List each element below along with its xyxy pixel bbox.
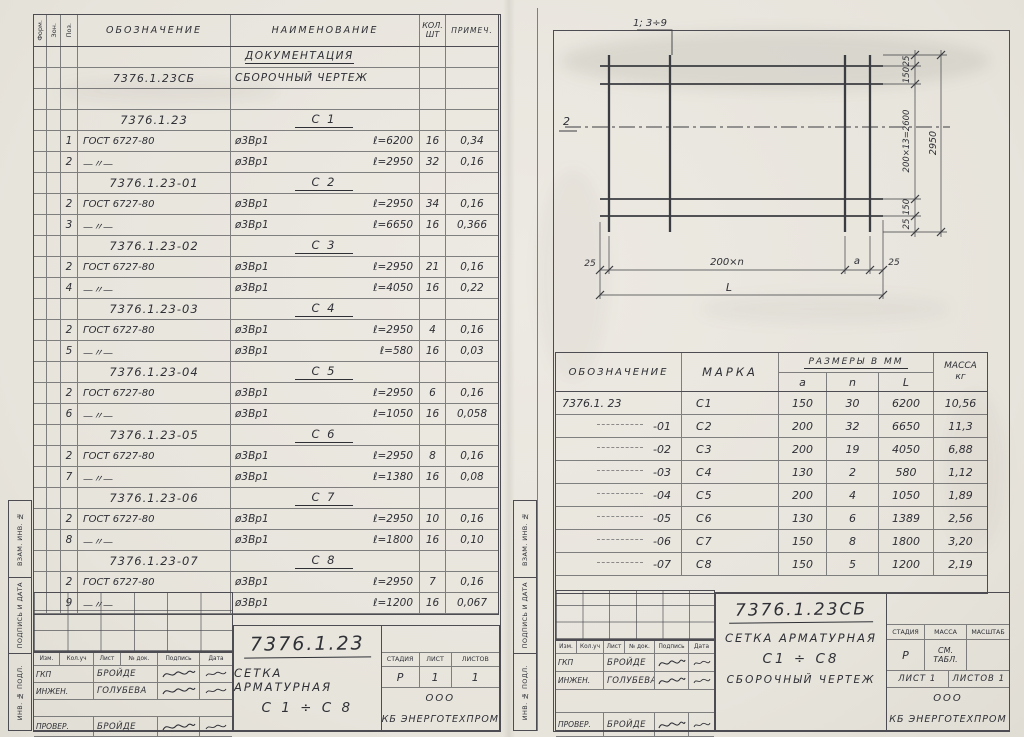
cell-note: 0,16 bbox=[446, 257, 498, 277]
drawing-title-line3: СБОРОЧНЫЙ ЧЕРТЕЖ bbox=[727, 674, 876, 686]
sig-header-koluch: Кол.уч bbox=[577, 641, 604, 653]
right-title-right: СТАДИЯ МАССА МАСШТАБ Р СМ. ТАБЛ. ЛИСТ 1 … bbox=[886, 593, 1009, 730]
item-name: ø3Вр1 bbox=[235, 408, 269, 420]
signature-row: ИНЖЕН. ГОЛУБЕВА bbox=[34, 683, 232, 700]
sig-role: ГКП bbox=[556, 654, 604, 671]
cell-mass: 2,56 bbox=[934, 507, 987, 529]
stage-values-row: Р СМ. ТАБЛ. bbox=[887, 640, 1009, 671]
ditto-line bbox=[597, 562, 643, 563]
cell-name: ø3Вр1ℓ=2950 bbox=[231, 572, 420, 592]
dim-label-pitch-horizontal: 200×n bbox=[710, 257, 744, 268]
cell-size-n: 2 bbox=[827, 461, 879, 483]
cell-qty bbox=[420, 110, 446, 130]
mesh-designation: -03 bbox=[653, 466, 671, 479]
cell-name: ø3Вр1ℓ=1800 bbox=[231, 530, 420, 550]
cell-zone bbox=[47, 467, 61, 487]
cell-mesh-designation: -06 bbox=[556, 530, 682, 552]
cell-pos: 2 bbox=[61, 152, 78, 172]
cell-note: 0,10 bbox=[446, 530, 498, 550]
cell-pos: 1 bbox=[61, 131, 78, 151]
cell-note: 0,16 bbox=[446, 194, 498, 214]
dim-label-a: a bbox=[854, 256, 860, 267]
item-name: ø3Вр1 bbox=[235, 345, 269, 357]
cell-designation: —〃— bbox=[78, 215, 231, 235]
cell-name: ø3Вр1ℓ=6650 bbox=[231, 215, 420, 235]
signature-icon bbox=[658, 675, 686, 687]
dim-label-150-bottom: 150 bbox=[902, 199, 912, 215]
cell-pos bbox=[61, 89, 78, 109]
sig-header-data: Дата bbox=[200, 653, 232, 665]
cell-size-n: 32 bbox=[827, 415, 879, 437]
right-page-edge-line bbox=[537, 8, 538, 731]
cell-note: 0,16 bbox=[446, 572, 498, 592]
cell-qty: 4 bbox=[420, 320, 446, 340]
cell-name: ø3Вр1ℓ=6200 bbox=[231, 131, 420, 151]
cell-pos: 6 bbox=[61, 404, 78, 424]
cell-size-a: 150 bbox=[779, 392, 827, 414]
cell-qty bbox=[420, 173, 446, 193]
cell-name: ø3Вр1ℓ=2950 bbox=[231, 320, 420, 340]
cell-pos: 2 bbox=[61, 320, 78, 340]
cell-size-a: 150 bbox=[779, 530, 827, 552]
cell-size-L: 1050 bbox=[879, 484, 934, 506]
cell-size-n: 19 bbox=[827, 438, 879, 460]
org-name-line1: ООО bbox=[887, 688, 1009, 708]
cell-note bbox=[446, 110, 498, 130]
sig-header-podpis: Подпись bbox=[655, 641, 689, 653]
cell-pos: 2 bbox=[61, 446, 78, 466]
cell-pos bbox=[61, 236, 78, 256]
spec-table-row: 2 ГОСТ 6727-80 ø3Вр1ℓ=2950 21 0,16 bbox=[34, 257, 498, 278]
drawing-title-line2: С1 ÷ С8 bbox=[763, 651, 840, 667]
item-length: ℓ=1050 bbox=[373, 408, 415, 420]
cell-size-n: 30 bbox=[827, 392, 879, 414]
item-name: ø3Вр1 bbox=[235, 324, 269, 336]
sig-role: ИНЖЕН. bbox=[556, 672, 604, 689]
spec-table-row: 2 ГОСТ 6727-80 ø3Вр1ℓ=2950 7 0,16 bbox=[34, 572, 498, 593]
cell-qty: 7 bbox=[420, 572, 446, 592]
cell-mass: 2,19 bbox=[934, 553, 987, 575]
dim-label-25-right: 25 bbox=[888, 258, 900, 268]
mesh-table-row: -07 С8 150 5 1200 2,19 bbox=[556, 553, 987, 576]
mesh-designation: -01 bbox=[653, 420, 671, 433]
item-name: С 6 bbox=[295, 427, 352, 443]
cell-name: С 3 bbox=[231, 236, 420, 256]
cell-pos: 2 bbox=[61, 257, 78, 277]
right-title-block: 7376.1.23СБ СЕТКА АРМАТУРНАЯ С1 ÷ С8 СБО… bbox=[715, 592, 1010, 731]
cell-size-a: 130 bbox=[779, 461, 827, 483]
cell-zone bbox=[47, 488, 61, 508]
item-length: ℓ=2950 bbox=[373, 513, 415, 525]
spec-table-row: 5 —〃— ø3Вр1ℓ=580 16 0,03 bbox=[34, 341, 498, 362]
cell-size-L: 1389 bbox=[879, 507, 934, 529]
spec-table-row: 3 —〃— ø3Вр1ℓ=6650 16 0,366 bbox=[34, 215, 498, 236]
cell-qty: 16 bbox=[420, 341, 446, 361]
item-name: ø3Вр1 bbox=[235, 450, 269, 462]
cell-note bbox=[446, 68, 498, 88]
side-stamp-label: ИНВ. № ПОДЛ. bbox=[521, 665, 529, 720]
item-name: С 7 bbox=[295, 490, 352, 506]
scale-value bbox=[967, 640, 1009, 670]
cell-size-a: 200 bbox=[779, 484, 827, 506]
cell-form bbox=[34, 110, 47, 130]
cell-zone bbox=[47, 47, 61, 67]
cell-zone bbox=[47, 278, 61, 298]
item-name: ø3Вр1 bbox=[235, 513, 269, 525]
date-scrawl-icon bbox=[205, 669, 227, 679]
side-stamp-cell: ИНВ. № ПОДЛ. bbox=[9, 654, 31, 730]
cell-form bbox=[34, 131, 47, 151]
cell-pos: 3 bbox=[61, 215, 78, 235]
sig-header-izm: Изм. bbox=[556, 641, 577, 653]
cell-mesh-mark: С1 bbox=[682, 392, 779, 414]
cell-name: С 4 bbox=[231, 299, 420, 319]
cell-qty: 16 bbox=[420, 131, 446, 151]
cell-note bbox=[446, 488, 498, 508]
signature-icon bbox=[658, 719, 686, 731]
cell-zone bbox=[47, 110, 61, 130]
cell-mass: 6,88 bbox=[934, 438, 987, 460]
cell-note: 0,22 bbox=[446, 278, 498, 298]
item-length: ℓ=6650 bbox=[373, 219, 415, 231]
spec-table-row: 2 ГОСТ 6727-80 ø3Вр1ℓ=2950 8 0,16 bbox=[34, 446, 498, 467]
signature-row: ПРОВЕР. БРОЙДЕ bbox=[556, 712, 714, 737]
sig-name: ГОЛУБЕВА bbox=[94, 683, 158, 699]
sig-name: ГОЛУБЕВА bbox=[604, 672, 655, 689]
sig-name: БРОЙДЕ bbox=[604, 713, 655, 736]
item-length: ℓ=2950 bbox=[373, 387, 415, 399]
ditto-line bbox=[597, 447, 643, 448]
cell-pos bbox=[61, 110, 78, 130]
side-stamp-label: ВЗАМ. ИНВ. № bbox=[16, 512, 24, 566]
left-side-stamp: ВЗАМ. ИНВ. № ПОДПИСЬ И ДАТА ИНВ. № ПОДЛ. bbox=[8, 500, 32, 731]
org-name-line1: ООО bbox=[382, 688, 499, 709]
cell-form bbox=[34, 530, 47, 550]
cell-mesh-designation: -04 bbox=[556, 484, 682, 506]
sig-header-podpis: Подпись bbox=[158, 653, 200, 665]
signature-row: ГКП БРОЙДЕ bbox=[556, 654, 714, 672]
item-name: ø3Вр1 bbox=[235, 219, 269, 231]
cell-mesh-mark: С4 bbox=[682, 461, 779, 483]
cell-note: 0,067 bbox=[446, 593, 498, 613]
cell-pos: 2 bbox=[61, 383, 78, 403]
cell-zone bbox=[47, 404, 61, 424]
date-scrawl-icon bbox=[205, 722, 227, 732]
mesh-table-row: -01 С2 200 32 6650 11,3 bbox=[556, 415, 987, 438]
cell-form bbox=[34, 68, 47, 88]
cell-qty bbox=[420, 425, 446, 445]
drawing-title-line1: СЕТКА АРМАТУРНАЯ bbox=[234, 666, 381, 694]
cell-form bbox=[34, 278, 47, 298]
cell-size-L: 6200 bbox=[879, 392, 934, 414]
cell-form bbox=[34, 257, 47, 277]
mesh-col-sizes: РАЗМЕРЫ В ММ a n L bbox=[779, 353, 934, 391]
spec-table-row: 2 ГОСТ 6727-80 ø3Вр1ℓ=2950 10 0,16 bbox=[34, 509, 498, 530]
mesh-designation: -06 bbox=[653, 535, 671, 548]
stage-value: Р bbox=[887, 640, 925, 670]
cell-note: 0,366 bbox=[446, 215, 498, 235]
cell-form bbox=[34, 446, 47, 466]
cell-zone bbox=[47, 530, 61, 550]
spec-table-row: 7 —〃— ø3Вр1ℓ=1380 16 0,08 bbox=[34, 467, 498, 488]
cell-note: 0,03 bbox=[446, 341, 498, 361]
item-name: ø3Вр1 bbox=[235, 282, 269, 294]
sizes-header: РАЗМЕРЫ В ММ bbox=[804, 357, 907, 369]
cell-name: С 6 bbox=[231, 425, 420, 445]
cell-qty bbox=[420, 488, 446, 508]
cell-size-n: 4 bbox=[827, 484, 879, 506]
signature-rows: ГКП БРОЙДЕ ИНЖЕН. ГОЛУБЕВА ПРОВЕР. БРОЙД… bbox=[34, 666, 232, 737]
cell-designation: 7376.1.23-07 bbox=[78, 551, 231, 571]
spec-table-row: 6 —〃— ø3Вр1ℓ=1050 16 0,058 bbox=[34, 404, 498, 425]
cell-pos: 2 bbox=[61, 509, 78, 529]
dim-label-25-left: 25 bbox=[584, 259, 596, 269]
sig-header-izm: Изм. bbox=[34, 653, 60, 665]
cell-form bbox=[34, 236, 47, 256]
title-block-spacer bbox=[887, 593, 1009, 624]
cell-qty: 16 bbox=[420, 215, 446, 235]
cell-zone bbox=[47, 68, 61, 88]
cell-form bbox=[34, 551, 47, 571]
cell-pos: 4 bbox=[61, 278, 78, 298]
cell-designation: —〃— bbox=[78, 152, 231, 172]
drawing-title-line2: С 1 ÷ С 8 bbox=[262, 700, 354, 716]
document-number: 7376.1.23СБ bbox=[729, 599, 873, 624]
col-header-zone: Зон. bbox=[50, 23, 58, 37]
item-length: ℓ=6200 bbox=[373, 135, 415, 147]
cell-note bbox=[446, 47, 498, 67]
cell-pos bbox=[61, 299, 78, 319]
document-number: 7376.1.23 bbox=[244, 632, 371, 658]
cell-zone bbox=[47, 299, 61, 319]
cell-qty: 16 bbox=[420, 530, 446, 550]
sig-header-list: Лист bbox=[94, 653, 121, 665]
item-length: ℓ=4050 bbox=[373, 282, 415, 294]
cell-name: СБОРОЧНЫЙ ЧЕРТЕЖ bbox=[231, 68, 420, 88]
mesh-designation: -04 bbox=[653, 489, 671, 502]
stage-values-row: Р 1 1 bbox=[382, 667, 499, 688]
spec-table-row: 7376.1.23-06 С 7 bbox=[34, 488, 498, 509]
cell-note bbox=[446, 299, 498, 319]
spec-table-row: 7376.1.23СБ СБОРОЧНЫЙ ЧЕРТЕЖ bbox=[34, 68, 498, 89]
sheets-value: 1 bbox=[452, 667, 499, 687]
stage-header: СТАДИЯ bbox=[382, 653, 420, 666]
spec-table-row: 2 ГОСТ 6727-80 ø3Вр1ℓ=2950 34 0,16 bbox=[34, 194, 498, 215]
cell-note: 0,058 bbox=[446, 404, 498, 424]
cell-qty: 16 bbox=[420, 404, 446, 424]
cell-zone bbox=[47, 215, 61, 235]
cell-zone bbox=[47, 572, 61, 592]
cell-mass: 1,89 bbox=[934, 484, 987, 506]
cell-designation: —〃— bbox=[78, 467, 231, 487]
org-name-line2: КБ ЭНЕРГОТЕХПРОМ bbox=[382, 709, 499, 730]
cell-qty: 8 bbox=[420, 446, 446, 466]
item-name: С 3 bbox=[295, 238, 352, 254]
cell-pos bbox=[61, 68, 78, 88]
mesh-designation: -07 bbox=[653, 558, 671, 571]
cell-designation: —〃— bbox=[78, 530, 231, 550]
item-length: ℓ=1200 bbox=[373, 597, 415, 609]
cell-pos bbox=[61, 47, 78, 67]
sig-name: БРОЙДЕ bbox=[94, 717, 158, 736]
ditto-line bbox=[597, 539, 643, 540]
mass-header-line1: МАССА bbox=[944, 361, 977, 372]
spec-table-row: 4 —〃— ø3Вр1ℓ=4050 16 0,22 bbox=[34, 278, 498, 299]
side-stamp-label: ПОДПИСЬ И ДАТА bbox=[521, 582, 529, 648]
mesh-designation: 7376.1. 23 bbox=[562, 397, 621, 410]
title-block-spacer bbox=[382, 626, 499, 652]
mesh-marks-table: ОБОЗНАЧЕНИЕ МАРКА РАЗМЕРЫ В ММ a n L МАС… bbox=[555, 352, 988, 594]
cell-form bbox=[34, 341, 47, 361]
mesh-assembly-drawing: 1; 3÷9 2 25 150 200×13=2600 150 25 2950 … bbox=[553, 8, 1008, 340]
stage-value: Р bbox=[382, 667, 420, 687]
col-header-pos: Поз. bbox=[65, 23, 73, 37]
cell-size-n: 5 bbox=[827, 553, 879, 575]
cell-pos bbox=[61, 173, 78, 193]
side-stamp-cell: ВЗАМ. ИНВ. № bbox=[9, 501, 31, 578]
cell-note: 0,34 bbox=[446, 131, 498, 151]
cell-zone bbox=[47, 173, 61, 193]
left-title-middle: 7376.1.23 СЕТКА АРМАТУРНАЯ С 1 ÷ С 8 bbox=[234, 626, 381, 730]
cell-designation: ГОСТ 6727-80 bbox=[78, 257, 231, 277]
cell-qty: 21 bbox=[420, 257, 446, 277]
ditto-line bbox=[597, 470, 643, 471]
signature-row: ИНЖЕН. ГОЛУБЕВА bbox=[556, 672, 714, 690]
cell-qty bbox=[420, 89, 446, 109]
cell-qty bbox=[420, 362, 446, 382]
dim-label-25-top: 25 bbox=[902, 56, 912, 67]
col-header-note: ПРИМЕЧ. bbox=[446, 15, 498, 46]
spec-table-row: 7376.1.23-02 С 3 bbox=[34, 236, 498, 257]
side-stamp-label: ИНВ. № ПОДЛ. bbox=[16, 665, 24, 720]
cell-mass: 3,20 bbox=[934, 530, 987, 552]
sheet-value: 1 bbox=[420, 667, 452, 687]
signature-icon bbox=[162, 668, 196, 680]
cell-pos: 7 bbox=[61, 467, 78, 487]
mass-header-line2: кг bbox=[955, 372, 965, 383]
cell-size-a: 130 bbox=[779, 507, 827, 529]
cell-form bbox=[34, 383, 47, 403]
org-name-line2: КБ ЭНЕРГОТЕХПРОМ bbox=[887, 708, 1009, 730]
cell-note: 0,16 bbox=[446, 152, 498, 172]
mesh-table-row: -03 С4 130 2 580 1,12 bbox=[556, 461, 987, 484]
sig-role: ПРОВЕР. bbox=[34, 717, 94, 736]
item-name: ø3Вр1 bbox=[235, 471, 269, 483]
item-name: С 1 bbox=[295, 112, 352, 128]
cell-mesh-designation: -02 bbox=[556, 438, 682, 460]
item-name: ø3Вр1 bbox=[235, 534, 269, 546]
cell-mesh-mark: С3 bbox=[682, 438, 779, 460]
sheet-number: ЛИСТ 1 bbox=[887, 671, 949, 687]
cell-form bbox=[34, 404, 47, 424]
cell-size-n: 6 bbox=[827, 507, 879, 529]
sig-name: БРОЙДЕ bbox=[604, 654, 655, 671]
cell-name: С 7 bbox=[231, 488, 420, 508]
sig-role: ГКП bbox=[34, 666, 94, 682]
col-header-name: НАИМЕНОВАНИЕ bbox=[231, 15, 420, 46]
cell-designation: 7376.1.23-03 bbox=[78, 299, 231, 319]
ditto-line bbox=[597, 516, 643, 517]
cell-designation: —〃— bbox=[78, 404, 231, 424]
scale-header: МАСШТАБ bbox=[967, 625, 1009, 639]
cell-name: ДОКУМЕНТАЦИЯ bbox=[231, 47, 420, 67]
cell-pos bbox=[61, 551, 78, 571]
drawing-title-line1: СЕТКА АРМАТУРНАЯ bbox=[725, 631, 877, 645]
cell-size-a: 200 bbox=[779, 415, 827, 437]
ditto-line bbox=[597, 493, 643, 494]
cell-name: ø3Вр1ℓ=2950 bbox=[231, 383, 420, 403]
stage-header-row: СТАДИЯ ЛИСТ ЛИСТОВ bbox=[382, 652, 499, 667]
item-name: С 8 bbox=[295, 553, 352, 569]
item-name: ø3Вр1 bbox=[235, 198, 269, 210]
sheets-header: ЛИСТОВ bbox=[452, 653, 499, 666]
mesh-col-mass: МАССА кг bbox=[934, 353, 987, 391]
scanned-drawing-sheet: ВЗАМ. ИНВ. № ПОДПИСЬ И ДАТА ИНВ. № ПОДЛ.… bbox=[0, 0, 1024, 737]
cell-name: ø3Вр1ℓ=2950 bbox=[231, 446, 420, 466]
sheet-count-row: ЛИСТ 1 ЛИСТОВ 1 bbox=[887, 671, 1009, 688]
cell-qty bbox=[420, 68, 446, 88]
cell-form bbox=[34, 467, 47, 487]
spec-table-row: 1 ГОСТ 6727-80 ø3Вр1ℓ=6200 16 0,34 bbox=[34, 131, 498, 152]
cell-pos bbox=[61, 362, 78, 382]
col-header-designation: ОБОЗНАЧЕНИЕ bbox=[78, 15, 231, 46]
cell-note bbox=[446, 173, 498, 193]
dim-label-total-height: 2950 bbox=[928, 131, 939, 155]
sig-header-data: Дата bbox=[689, 641, 714, 653]
left-title-right: СТАДИЯ ЛИСТ ЛИСТОВ Р 1 1 ООО КБ ЭНЕРГОТЕ… bbox=[381, 626, 499, 730]
cell-name: С 1 bbox=[231, 110, 420, 130]
cell-qty bbox=[420, 299, 446, 319]
left-title-block: 7376.1.23 СЕТКА АРМАТУРНАЯ С 1 ÷ С 8 СТА… bbox=[233, 625, 500, 731]
item-length: ℓ=1380 bbox=[373, 471, 415, 483]
cell-note bbox=[446, 425, 498, 445]
spec-table-row: 7376.1.23-03 С 4 bbox=[34, 299, 498, 320]
mesh-designation: -02 bbox=[653, 443, 671, 456]
cell-note bbox=[446, 362, 498, 382]
sig-header-ndok: № док. bbox=[625, 641, 655, 653]
signature-row: ПРОВЕР. БРОЙДЕ bbox=[34, 716, 232, 737]
cell-name: С 8 bbox=[231, 551, 420, 571]
cell-form bbox=[34, 152, 47, 172]
side-stamp-cell: ВЗАМ. ИНВ. № bbox=[514, 501, 536, 578]
side-stamp-label: ПОДПИСЬ И ДАТА bbox=[16, 582, 24, 648]
dim-label-pitch-vertical: 200×13=2600 bbox=[902, 110, 912, 173]
spec-table-row: ДОКУМЕНТАЦИЯ bbox=[34, 47, 498, 68]
mesh-table-row: 7376.1. 23 С1 150 30 6200 10,56 bbox=[556, 392, 987, 415]
left-signature-block: Изм. Кол.уч Лист № док. Подпись Дата ГКП… bbox=[33, 652, 233, 731]
cell-size-n: 8 bbox=[827, 530, 879, 552]
col-header-qty-line2: ШТ bbox=[426, 31, 439, 40]
cell-qty bbox=[420, 551, 446, 571]
cell-zone bbox=[47, 236, 61, 256]
cell-mesh-designation: 7376.1. 23 bbox=[556, 392, 682, 414]
specification-table: Форм. Зон. Поз. ОБОЗНАЧЕНИЕ НАИМЕНОВАНИЕ… bbox=[33, 14, 499, 615]
cell-form bbox=[34, 509, 47, 529]
cell-note bbox=[446, 89, 498, 109]
cell-designation: —〃— bbox=[78, 341, 231, 361]
side-stamp-cell: ПОДПИСЬ И ДАТА bbox=[9, 578, 31, 655]
item-length: ℓ=2950 bbox=[373, 198, 415, 210]
cell-designation: ГОСТ 6727-80 bbox=[78, 131, 231, 151]
signature-icon bbox=[162, 721, 196, 733]
cell-mass: 11,3 bbox=[934, 415, 987, 437]
cell-name: ø3Вр1ℓ=1200 bbox=[231, 593, 420, 613]
item-length: ℓ=2950 bbox=[373, 156, 415, 168]
item-name: ø3Вр1 bbox=[235, 597, 269, 609]
cell-designation bbox=[78, 89, 231, 109]
cell-name: ø3Вр1ℓ=1380 bbox=[231, 467, 420, 487]
item-length: ℓ=2950 bbox=[373, 576, 415, 588]
